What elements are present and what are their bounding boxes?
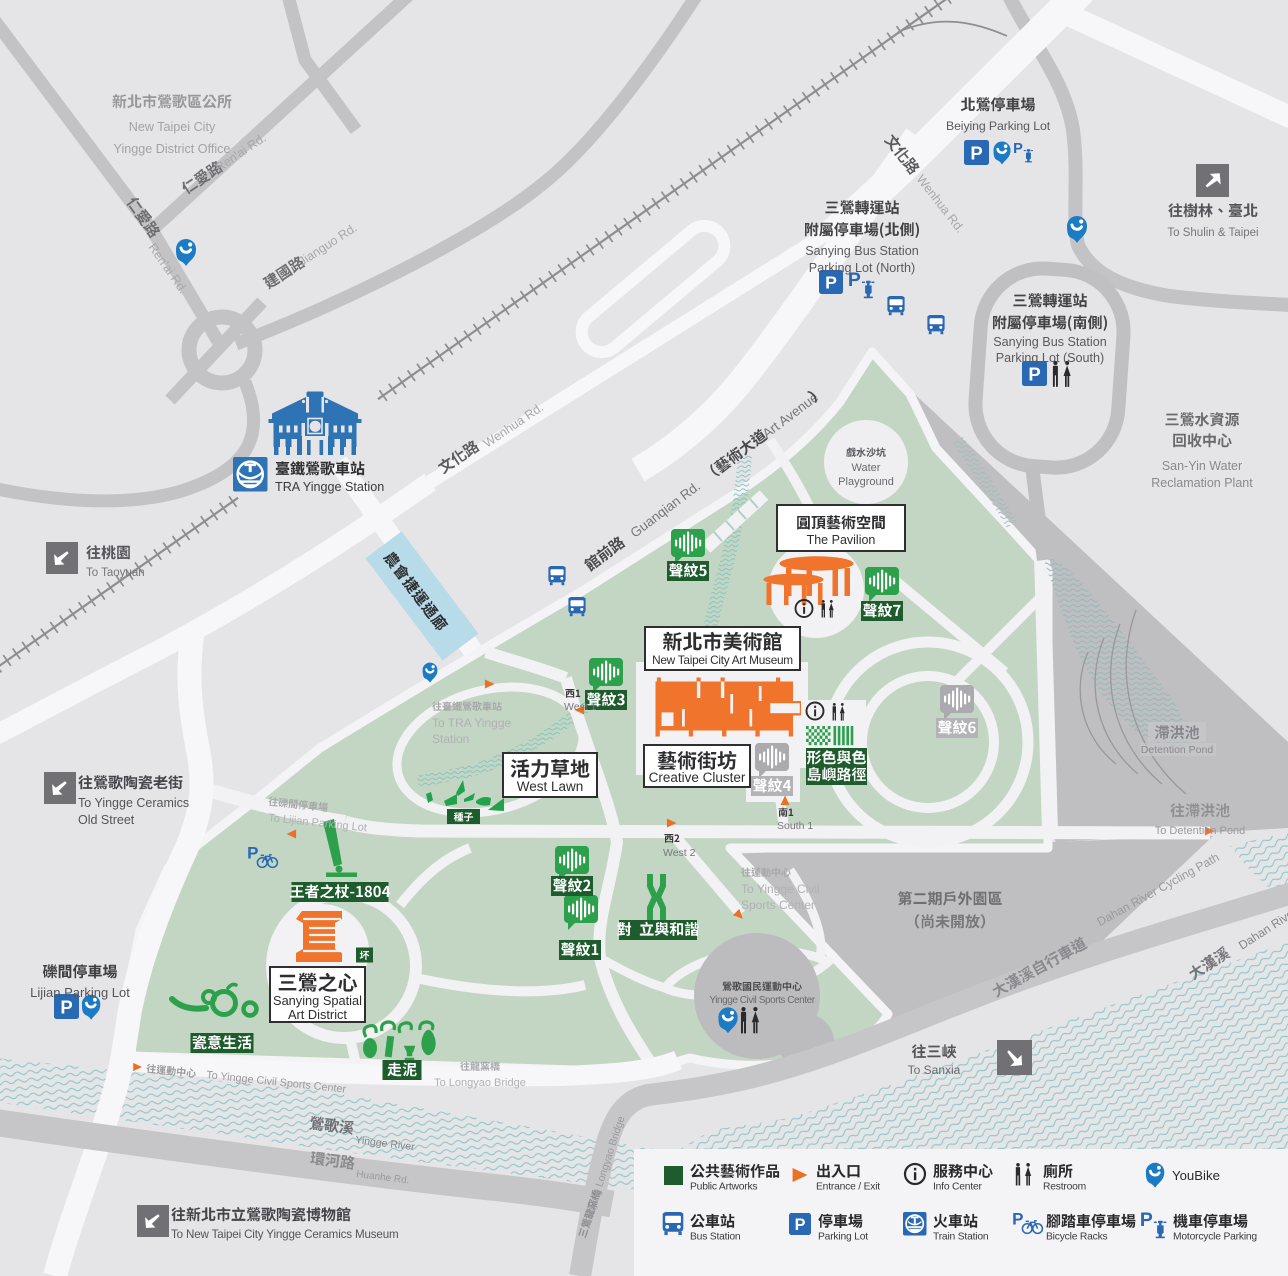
svg-text:Art District: Art District <box>288 1007 347 1022</box>
svg-text:South 1: South 1 <box>777 820 813 832</box>
svg-text:San-Yin Water: San-Yin Water <box>1162 459 1242 473</box>
svg-text:Sanying Bus Station: Sanying Bus Station <box>805 244 918 258</box>
svg-text:To Shulin & Taipei: To Shulin & Taipei <box>1167 227 1258 239</box>
svg-text:To TRA Yingge: To TRA Yingge <box>432 716 511 730</box>
svg-text:To Yingge Civil: To Yingge Civil <box>741 882 820 896</box>
svg-text:Parking Lot (South): Parking Lot (South) <box>996 351 1105 365</box>
svg-text:Bus Station: Bus Station <box>690 1232 741 1243</box>
svg-text:West Lawn: West Lawn <box>517 779 584 794</box>
svg-text:New Taipei City: New Taipei City <box>129 120 216 134</box>
svg-text:Yingge Civil Sports Center: Yingge Civil Sports Center <box>709 995 815 1006</box>
svg-text:To Taoyuan: To Taoyuan <box>86 567 145 579</box>
svg-text:P: P <box>247 844 258 863</box>
svg-text:Reclamation Plant: Reclamation Plant <box>1151 476 1253 490</box>
svg-text:TRA Yingge Station: TRA Yingge Station <box>275 480 384 494</box>
svg-text:P: P <box>1013 141 1023 157</box>
svg-text:West 2: West 2 <box>663 847 696 859</box>
svg-text:P: P <box>795 1216 806 1234</box>
svg-text:To Yingge Ceramics: To Yingge Ceramics <box>78 796 189 810</box>
svg-text:P: P <box>825 273 837 293</box>
svg-text:The Pavilion: The Pavilion <box>807 533 876 547</box>
svg-text:Parking Lot: Parking Lot <box>818 1232 868 1243</box>
svg-text:P: P <box>1028 364 1040 385</box>
svg-text:Sports Center: Sports Center <box>741 898 815 912</box>
svg-text:YouBike: YouBike <box>1172 1168 1220 1183</box>
svg-text:Public Artworks: Public Artworks <box>690 1182 757 1193</box>
svg-text:To New Taipei City Yingge Cera: To New Taipei City Yingge Ceramics Museu… <box>171 1228 399 1241</box>
svg-text:Creative Cluster: Creative Cluster <box>649 770 746 785</box>
svg-text:Old Street: Old Street <box>78 813 135 827</box>
svg-text:Detention Pond: Detention Pond <box>1141 744 1214 756</box>
svg-text:New Taipei City Art Museum: New Taipei City Art Museum <box>652 653 793 667</box>
svg-text:Bicycle Racks: Bicycle Racks <box>1046 1232 1108 1243</box>
svg-text:P: P <box>1140 1209 1153 1231</box>
svg-text:Beiying Parking Lot: Beiying Parking Lot <box>946 119 1051 133</box>
svg-text:To Sanxia: To Sanxia <box>908 1063 961 1077</box>
svg-text:Lijian Parking Lot: Lijian Parking Lot <box>30 985 130 1000</box>
svg-text:Parking Lot (North): Parking Lot (North) <box>809 261 915 275</box>
svg-text:Restroom: Restroom <box>1043 1182 1086 1193</box>
svg-text:Motorcycle Parking: Motorcycle Parking <box>1173 1232 1257 1243</box>
svg-text:To Longyao Bridge: To Longyao Bridge <box>434 1077 526 1089</box>
svg-text:Water: Water <box>852 462 881 474</box>
svg-text:Sanying Spatial: Sanying Spatial <box>273 993 362 1008</box>
svg-text:West 1: West 1 <box>564 701 597 713</box>
svg-text:Sanying Bus Station: Sanying Bus Station <box>993 335 1106 349</box>
svg-text:Station: Station <box>432 732 469 746</box>
svg-text:Info Center: Info Center <box>933 1182 983 1193</box>
svg-text:P: P <box>970 143 982 164</box>
svg-text:To Detention Pond: To Detention Pond <box>1155 825 1246 837</box>
svg-text:Playground: Playground <box>838 476 894 488</box>
svg-text:Train Station: Train Station <box>933 1232 989 1243</box>
svg-text:Entrance / Exit: Entrance / Exit <box>816 1182 880 1193</box>
svg-text:P: P <box>1012 1210 1023 1229</box>
svg-text:Yingge District Office: Yingge District Office <box>114 142 231 156</box>
